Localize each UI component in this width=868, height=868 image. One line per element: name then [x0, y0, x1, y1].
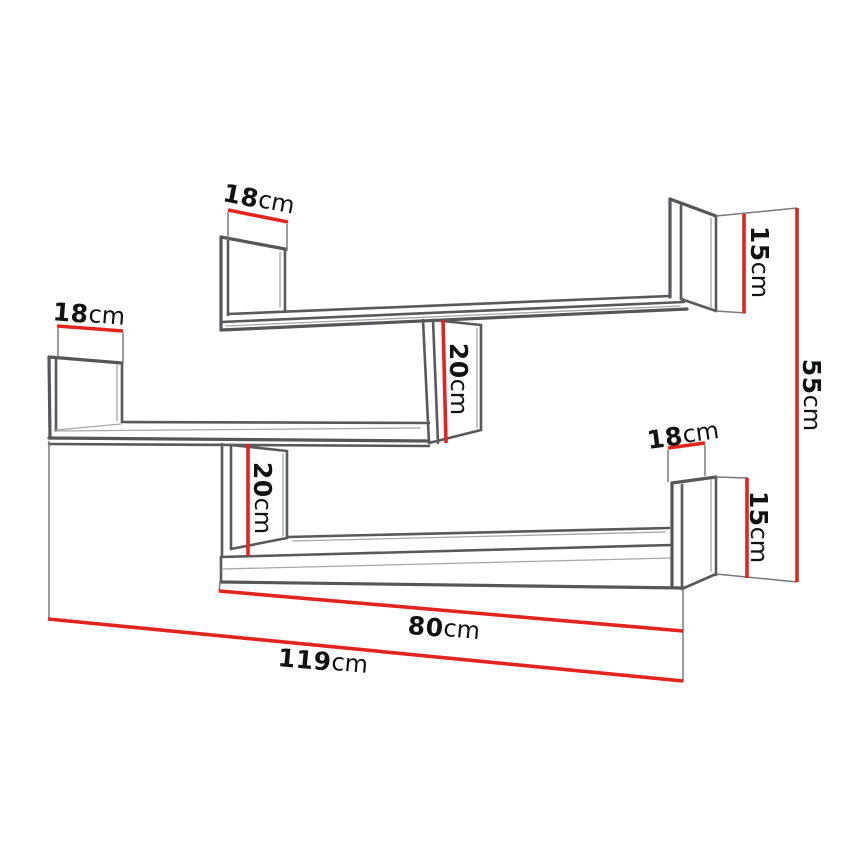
- wall-shelf-dimension-drawing: 18cm 18cm 20cm 15cm 55cm 18cm 15cm 20cm …: [0, 0, 868, 868]
- upper-shelf: [221, 296, 687, 330]
- ext-55cm-top: [716, 208, 797, 216]
- dim-label-18cm-mid-left: 18cm: [52, 297, 126, 332]
- panel-top-edge: [670, 199, 716, 216]
- dimension-labels: 18cm 18cm 20cm 15cm 55cm 18cm 15cm 20cm …: [52, 178, 827, 680]
- middle-shelf-left-end-panel: [49, 357, 122, 438]
- upper-shelf-left-end-panel: [221, 237, 285, 330]
- bottom-shelf-front-top-edge: [221, 545, 672, 557]
- middle-shelf-top-surface-highlight: [54, 428, 420, 431]
- bottom-shelf-right-end-edge: [684, 574, 716, 588]
- dim-label-55cm-overall-height: 55cm: [798, 359, 827, 431]
- dim-label-20cm-lower: 20cm: [249, 462, 278, 534]
- dim-label-15cm-top-right: 15cm: [746, 226, 775, 298]
- dim-label-80cm-shelf-length: 80cm: [407, 610, 482, 645]
- dim-label-15cm-bottom-right: 15cm: [745, 491, 774, 563]
- panel-bottom-edge: [56, 424, 121, 430]
- middle-shelf-back-top-edge: [122, 422, 429, 423]
- bottom-shelf-back-top-edge: [287, 528, 669, 537]
- panel-top-edge: [49, 357, 122, 363]
- ext-15cm-top-right-bottom: [716, 311, 746, 313]
- bottom-shelf-right-end-panel: [672, 477, 716, 589]
- bottom-shelf-front-bottom-edge: [221, 582, 684, 588]
- connector-left-edge: [423, 320, 429, 443]
- bottom-shelf: [221, 528, 716, 588]
- dim-label-18cm-bottom-right: 18cm: [645, 416, 721, 455]
- panel-left-edge: [49, 357, 50, 438]
- diagram-canvas: 18cm 18cm 20cm 15cm 55cm 18cm 15cm 20cm …: [0, 0, 868, 868]
- ext-15cm-bottom-right-top: [716, 477, 748, 478]
- connector-thickness-edge: [433, 320, 438, 443]
- connector-bottom-edge: [231, 538, 287, 549]
- dim-label-18cm-top-left: 18cm: [221, 178, 298, 220]
- upper-shelf-right-end-panel: [670, 199, 716, 311]
- middle-shelf-front-top-edge: [49, 438, 429, 441]
- dim-label-20cm-upper: 20cm: [445, 343, 474, 415]
- panel-top-edge: [672, 477, 716, 483]
- bottom-shelf-front-face-highlight: [222, 558, 672, 569]
- panel-top-edge: [221, 237, 285, 249]
- ext-55cm-bottom: [716, 574, 797, 582]
